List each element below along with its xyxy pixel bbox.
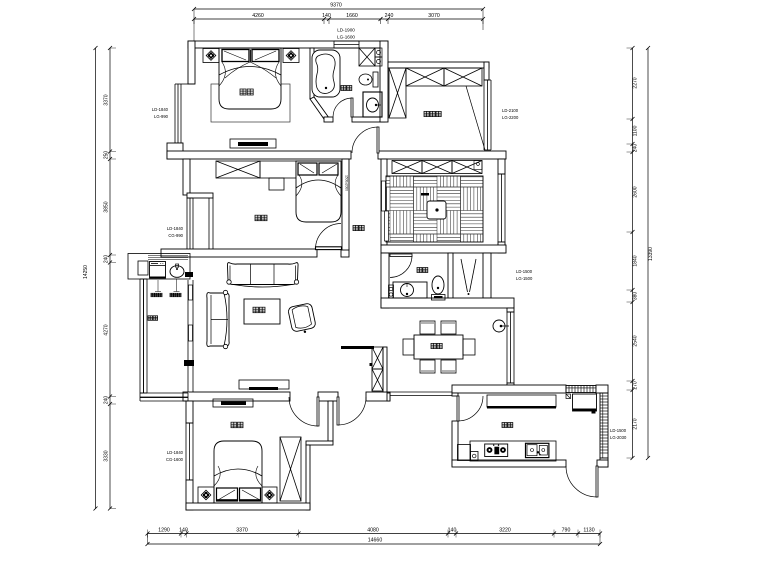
svg-text:1100: 1100 (633, 125, 639, 136)
svg-text:4260: 4260 (252, 13, 264, 19)
svg-text:1660: 1660 (346, 13, 358, 19)
svg-text:14250: 14250 (83, 265, 89, 279)
svg-text:CG-1600: CG-1600 (166, 457, 184, 462)
svg-text:140: 140 (448, 528, 457, 534)
svg-text:1500x2000: 1500x2000 (345, 175, 349, 191)
svg-text:240: 240 (104, 396, 110, 405)
svg-text:LD-1840: LD-1840 (152, 107, 169, 112)
svg-text:140: 140 (322, 13, 331, 19)
svg-text:3370: 3370 (104, 94, 110, 105)
svg-text:4080: 4080 (367, 528, 379, 534)
svg-text:LG-1600: LG-1600 (337, 35, 355, 40)
svg-text:2270: 2270 (633, 77, 639, 88)
svg-text:LG-2030: LG-2030 (610, 435, 627, 440)
svg-text:2540: 2540 (633, 335, 639, 346)
svg-text:3220: 3220 (499, 528, 511, 534)
svg-text:3070: 3070 (428, 13, 440, 19)
svg-text:2600: 2600 (633, 186, 639, 197)
svg-text:2170: 2170 (633, 418, 639, 429)
svg-text:LD-2100: LD-2100 (502, 108, 519, 113)
svg-text:240: 240 (104, 255, 110, 264)
svg-text:CG-990: CG-990 (168, 233, 183, 238)
svg-text:3330: 3330 (104, 450, 110, 461)
svg-text:LG-1500: LG-1500 (516, 276, 533, 281)
svg-text:380: 380 (633, 292, 639, 301)
svg-text:270: 270 (633, 381, 639, 390)
svg-text:13390: 13390 (648, 247, 654, 261)
svg-text:3850: 3850 (104, 201, 110, 212)
svg-text:LD-1500: LD-1500 (516, 269, 533, 274)
svg-text:3370: 3370 (236, 528, 248, 534)
svg-text:LD-1500: LD-1500 (610, 428, 627, 433)
svg-text:LG-990: LG-990 (154, 114, 169, 119)
svg-text:240: 240 (633, 144, 639, 153)
svg-text:250: 250 (104, 151, 110, 160)
svg-text:140: 140 (179, 528, 188, 534)
svg-text:LG-2200: LG-2200 (502, 115, 519, 120)
svg-text:9370: 9370 (330, 3, 342, 9)
svg-text:LD-1900: LD-1900 (337, 28, 355, 33)
svg-text:1290: 1290 (158, 528, 170, 534)
svg-text:1130: 1130 (583, 528, 594, 534)
svg-text:4270: 4270 (104, 324, 110, 335)
svg-text:790: 790 (562, 528, 571, 534)
svg-text:240: 240 (385, 13, 394, 19)
svg-text:LD-1840: LD-1840 (167, 450, 184, 455)
svg-text:14660: 14660 (368, 538, 383, 544)
svg-text:LD-1840: LD-1840 (167, 226, 184, 231)
svg-text:1840: 1840 (633, 255, 639, 266)
